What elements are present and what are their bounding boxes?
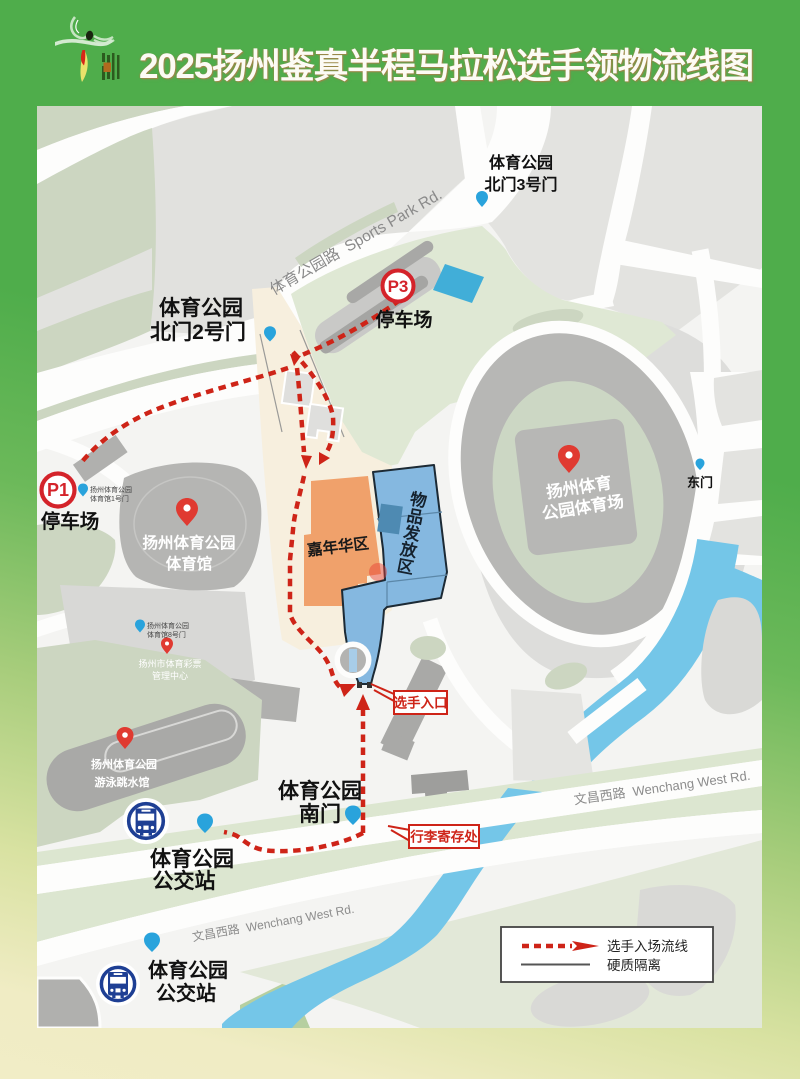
svg-text:选手入场流线: 选手入场流线 (607, 939, 688, 954)
svg-text:体育公园: 体育公园 (278, 779, 362, 803)
svg-text:扬州市体育彩票: 扬州市体育彩票 (138, 658, 201, 669)
svg-text:体育馆1号门: 体育馆1号门 (90, 494, 129, 503)
svg-text:东门: 东门 (687, 475, 713, 490)
svg-text:行李寄存处: 行李寄存处 (409, 829, 478, 845)
svg-text:游泳跳水馆: 游泳跳水馆 (95, 775, 150, 789)
svg-text:扬州体育公园: 扬州体育公园 (91, 757, 157, 771)
svg-text:体育公园: 体育公园 (489, 153, 553, 172)
svg-text:P3: P3 (388, 277, 409, 296)
svg-text:P1: P1 (47, 480, 69, 500)
svg-text:体育公园: 体育公园 (150, 847, 234, 871)
svg-text:公交站: 公交站 (153, 869, 216, 893)
svg-text:北门2号门: 北门2号门 (150, 320, 246, 344)
svg-text:扬州体育公园: 扬州体育公园 (147, 621, 189, 630)
svg-text:停车场: 停车场 (375, 308, 432, 331)
svg-text:扬州体育公园: 扬州体育公园 (90, 485, 132, 494)
svg-text:体育馆: 体育馆 (166, 554, 213, 573)
svg-text:北门3号门: 北门3号门 (485, 175, 558, 194)
svg-text:体育公园: 体育公园 (159, 296, 243, 320)
svg-text:硬质隔离: 硬质隔离 (607, 957, 661, 973)
svg-text:南门: 南门 (299, 802, 341, 826)
svg-text:选手入口: 选手入口 (394, 695, 448, 711)
svg-text:管理中心: 管理中心 (152, 670, 188, 681)
svg-text:扬州体育公园: 扬州体育公园 (142, 533, 235, 552)
svg-text:体育公园: 体育公园 (148, 958, 228, 982)
svg-text:公交站: 公交站 (156, 981, 216, 1005)
svg-text:停车场: 停车场 (41, 510, 100, 533)
